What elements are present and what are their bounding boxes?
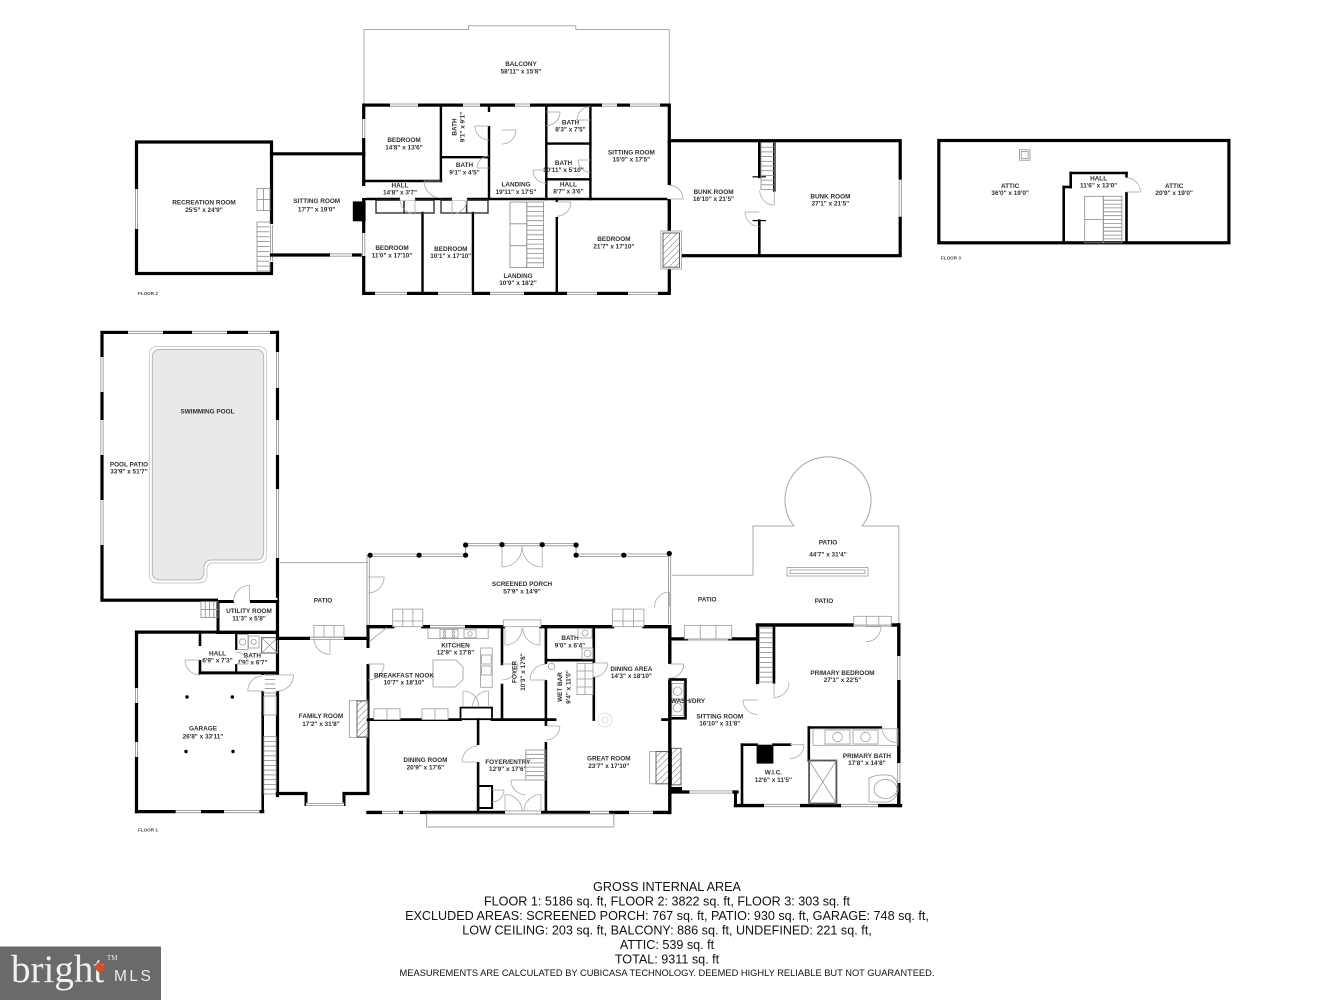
svg-text:FAMILY ROOM: FAMILY ROOM: [299, 713, 343, 720]
svg-text:HALL: HALL: [391, 182, 408, 189]
svg-text:FLOOR 2: FLOOR 2: [138, 291, 158, 296]
svg-text:LANDING: LANDING: [503, 273, 532, 280]
svg-text:9'4" x 11'0": 9'4" x 11'0": [565, 670, 572, 704]
svg-text:21'7" x 17'10": 21'7" x 17'10": [593, 243, 634, 250]
svg-text:20'9" x 17'6": 20'9" x 17'6": [407, 764, 445, 771]
svg-text:POOL PATIO: POOL PATIO: [110, 461, 148, 468]
svg-text:14'8" x 3'7": 14'8" x 3'7": [383, 190, 417, 197]
svg-text:W.I.C.: W.I.C.: [765, 770, 783, 777]
svg-text:BUNK ROOM: BUNK ROOM: [693, 189, 733, 196]
svg-text:HALL: HALL: [560, 181, 577, 188]
svg-text:SITTING ROOM: SITTING ROOM: [608, 150, 655, 157]
svg-text:MEASUREMENTS ARE CALCULATED BY: MEASUREMENTS ARE CALCULATED BY CUBICASA …: [400, 968, 935, 978]
svg-text:8'3" x 7'5": 8'3" x 7'5": [555, 127, 585, 134]
svg-text:27'1" x 21'5": 27'1" x 21'5": [812, 201, 850, 208]
svg-text:10'9" x 18'2": 10'9" x 18'2": [499, 280, 537, 287]
svg-text:EXCLUDED AREAS: SCREENED PORCH: EXCLUDED AREAS: SCREENED PORCH: 767 sq. …: [405, 909, 929, 923]
svg-text:BATH: BATH: [561, 635, 579, 642]
svg-text:58'11" x 15'8": 58'11" x 15'8": [501, 69, 542, 76]
svg-text:BEDROOM: BEDROOM: [434, 246, 467, 253]
svg-text:17'8" x 14'8": 17'8" x 14'8": [848, 760, 886, 767]
svg-text:FLOOR 1: FLOOR 1: [138, 828, 158, 833]
svg-text:DINING AREA: DINING AREA: [610, 666, 652, 673]
svg-text:TOTAL: 9311 sq. ft: TOTAL: 9311 sq. ft: [615, 953, 720, 967]
svg-text:FLOOR 3: FLOOR 3: [941, 256, 961, 261]
svg-text:PRIMARY BATH: PRIMARY BATH: [843, 753, 892, 760]
svg-text:MLS: MLS: [114, 968, 153, 985]
svg-text:26'8" x 33'11": 26'8" x 33'11": [183, 734, 224, 741]
svg-text:36'0" x 19'0": 36'0" x 19'0": [991, 190, 1029, 197]
svg-text:10'3" x 17'8": 10'3" x 17'8": [520, 653, 527, 691]
svg-text:BATH: BATH: [562, 120, 580, 127]
svg-text:BEDROOM: BEDROOM: [597, 236, 630, 243]
svg-text:11'6" x 13'0": 11'6" x 13'0": [1080, 183, 1117, 190]
svg-text:19'11" x 17'5": 19'11" x 17'5": [496, 189, 537, 196]
svg-text:SITTING ROOM: SITTING ROOM: [696, 714, 743, 721]
svg-text:12'6" x 11'5": 12'6" x 11'5": [755, 777, 792, 784]
svg-text:8'7" x 3'6": 8'7" x 3'6": [553, 189, 583, 196]
svg-text:ATTIC: ATTIC: [1165, 183, 1184, 190]
svg-text:GROSS INTERNAL AREA: GROSS INTERNAL AREA: [593, 880, 741, 894]
svg-text:BATH: BATH: [555, 160, 573, 167]
svg-text:23'7" x 17'10": 23'7" x 17'10": [588, 763, 629, 770]
svg-text:17'2" x 31'8": 17'2" x 31'8": [302, 721, 340, 728]
svg-text:6'9" x 7'3": 6'9" x 7'3": [202, 658, 232, 665]
svg-text:BALCONY: BALCONY: [505, 61, 537, 68]
svg-text:12'9" x 17'8": 12'9" x 17'8": [437, 650, 475, 657]
svg-text:17'7" x 19'0": 17'7" x 19'0": [298, 207, 336, 214]
svg-text:KITCHEN: KITCHEN: [441, 642, 470, 649]
svg-text:33'9" x 51'7": 33'9" x 51'7": [110, 469, 148, 476]
svg-text:16'10" x 31'8": 16'10" x 31'8": [699, 721, 740, 728]
svg-text:12'9" x 17'6": 12'9" x 17'6": [489, 766, 527, 773]
svg-text:44'7" x 31'4": 44'7" x 31'4": [809, 552, 847, 559]
svg-text:PATIO: PATIO: [815, 598, 834, 605]
svg-text:WET BAR: WET BAR: [557, 672, 564, 702]
svg-text:PATIO: PATIO: [819, 540, 838, 547]
svg-text:16'10" x 21'5": 16'10" x 21'5": [693, 196, 734, 203]
svg-text:7'9" x 6'7": 7'9" x 6'7": [237, 660, 267, 667]
svg-text:LANDING: LANDING: [501, 182, 530, 189]
svg-text:BEDROOM: BEDROOM: [387, 137, 420, 144]
svg-text:UTILITY ROOM: UTILITY ROOM: [226, 608, 272, 615]
svg-text:SITTING ROOM: SITTING ROOM: [293, 198, 340, 205]
svg-text:BREAKFAST NOOK: BREAKFAST NOOK: [374, 672, 434, 679]
svg-text:LOW CEILING: 203 sq. ft, BALCO: LOW CEILING: 203 sq. ft, BALCONY: 886 sq…: [462, 924, 871, 938]
svg-text:HALL: HALL: [1090, 175, 1107, 182]
svg-text:WASH/DRY: WASH/DRY: [671, 698, 706, 705]
svg-text:9'1" x 4'5": 9'1" x 4'5": [449, 169, 479, 176]
svg-text:ATTIC: 539 sq. ft: ATTIC: 539 sq. ft: [620, 938, 715, 952]
svg-text:PATIO: PATIO: [314, 598, 333, 605]
svg-text:PRIMARY BEDROOM: PRIMARY BEDROOM: [810, 670, 874, 677]
svg-text:9'0" x 6'4": 9'0" x 6'4": [555, 642, 585, 649]
svg-text:11'0" x 17'10": 11'0" x 17'10": [372, 252, 413, 259]
svg-text:TM: TM: [107, 954, 118, 962]
svg-text:GREAT ROOM: GREAT ROOM: [587, 756, 631, 763]
svg-text:BATH: BATH: [456, 162, 474, 169]
svg-text:14'8" x 13'6": 14'8" x 13'6": [385, 144, 423, 151]
svg-text:GARAGE: GARAGE: [189, 726, 218, 733]
svg-text:FOYER/ENTRY: FOYER/ENTRY: [485, 759, 531, 766]
svg-text:FOYER: FOYER: [512, 661, 519, 683]
svg-text:PATIO: PATIO: [698, 597, 717, 604]
svg-text:57'9" x 14'9": 57'9" x 14'9": [503, 588, 541, 595]
svg-text:10'1" x 17'10": 10'1" x 17'10": [430, 253, 471, 260]
svg-text:27'1" x 22'5": 27'1" x 22'5": [824, 677, 862, 684]
svg-text:14'3" x 18'10": 14'3" x 18'10": [611, 673, 652, 680]
svg-text:9'1" x 9'1": 9'1" x 9'1": [460, 112, 467, 142]
svg-text:RECREATION ROOM: RECREATION ROOM: [172, 200, 235, 207]
svg-text:SCREENED PORCH: SCREENED PORCH: [492, 581, 553, 588]
svg-text:HALL: HALL: [209, 651, 226, 658]
svg-text:DINING ROOM: DINING ROOM: [403, 757, 447, 764]
svg-text:BATH: BATH: [452, 118, 459, 136]
svg-text:ATTIC: ATTIC: [1001, 183, 1020, 190]
svg-text:20'9" x 19'0": 20'9" x 19'0": [1155, 190, 1193, 197]
svg-text:11'3" x 5'8": 11'3" x 5'8": [232, 615, 266, 622]
svg-text:10'7" x 18'10": 10'7" x 18'10": [383, 680, 424, 687]
svg-text:FLOOR 1: 5186 sq. ft, FLOOR 2:: FLOOR 1: 5186 sq. ft, FLOOR 2: 3822 sq. …: [484, 895, 851, 909]
svg-text:SWIMMING POOL: SWIMMING POOL: [181, 408, 235, 415]
svg-text:BEDROOM: BEDROOM: [375, 245, 408, 252]
svg-text:25'5" x 24'9": 25'5" x 24'9": [185, 207, 223, 214]
svg-text:bright: bright: [11, 948, 104, 991]
svg-text:15'0" x 17'5": 15'0" x 17'5": [613, 157, 651, 164]
svg-text:BUNK ROOM: BUNK ROOM: [810, 194, 850, 201]
svg-text:10'11" x 5'10": 10'11" x 5'10": [543, 167, 584, 174]
